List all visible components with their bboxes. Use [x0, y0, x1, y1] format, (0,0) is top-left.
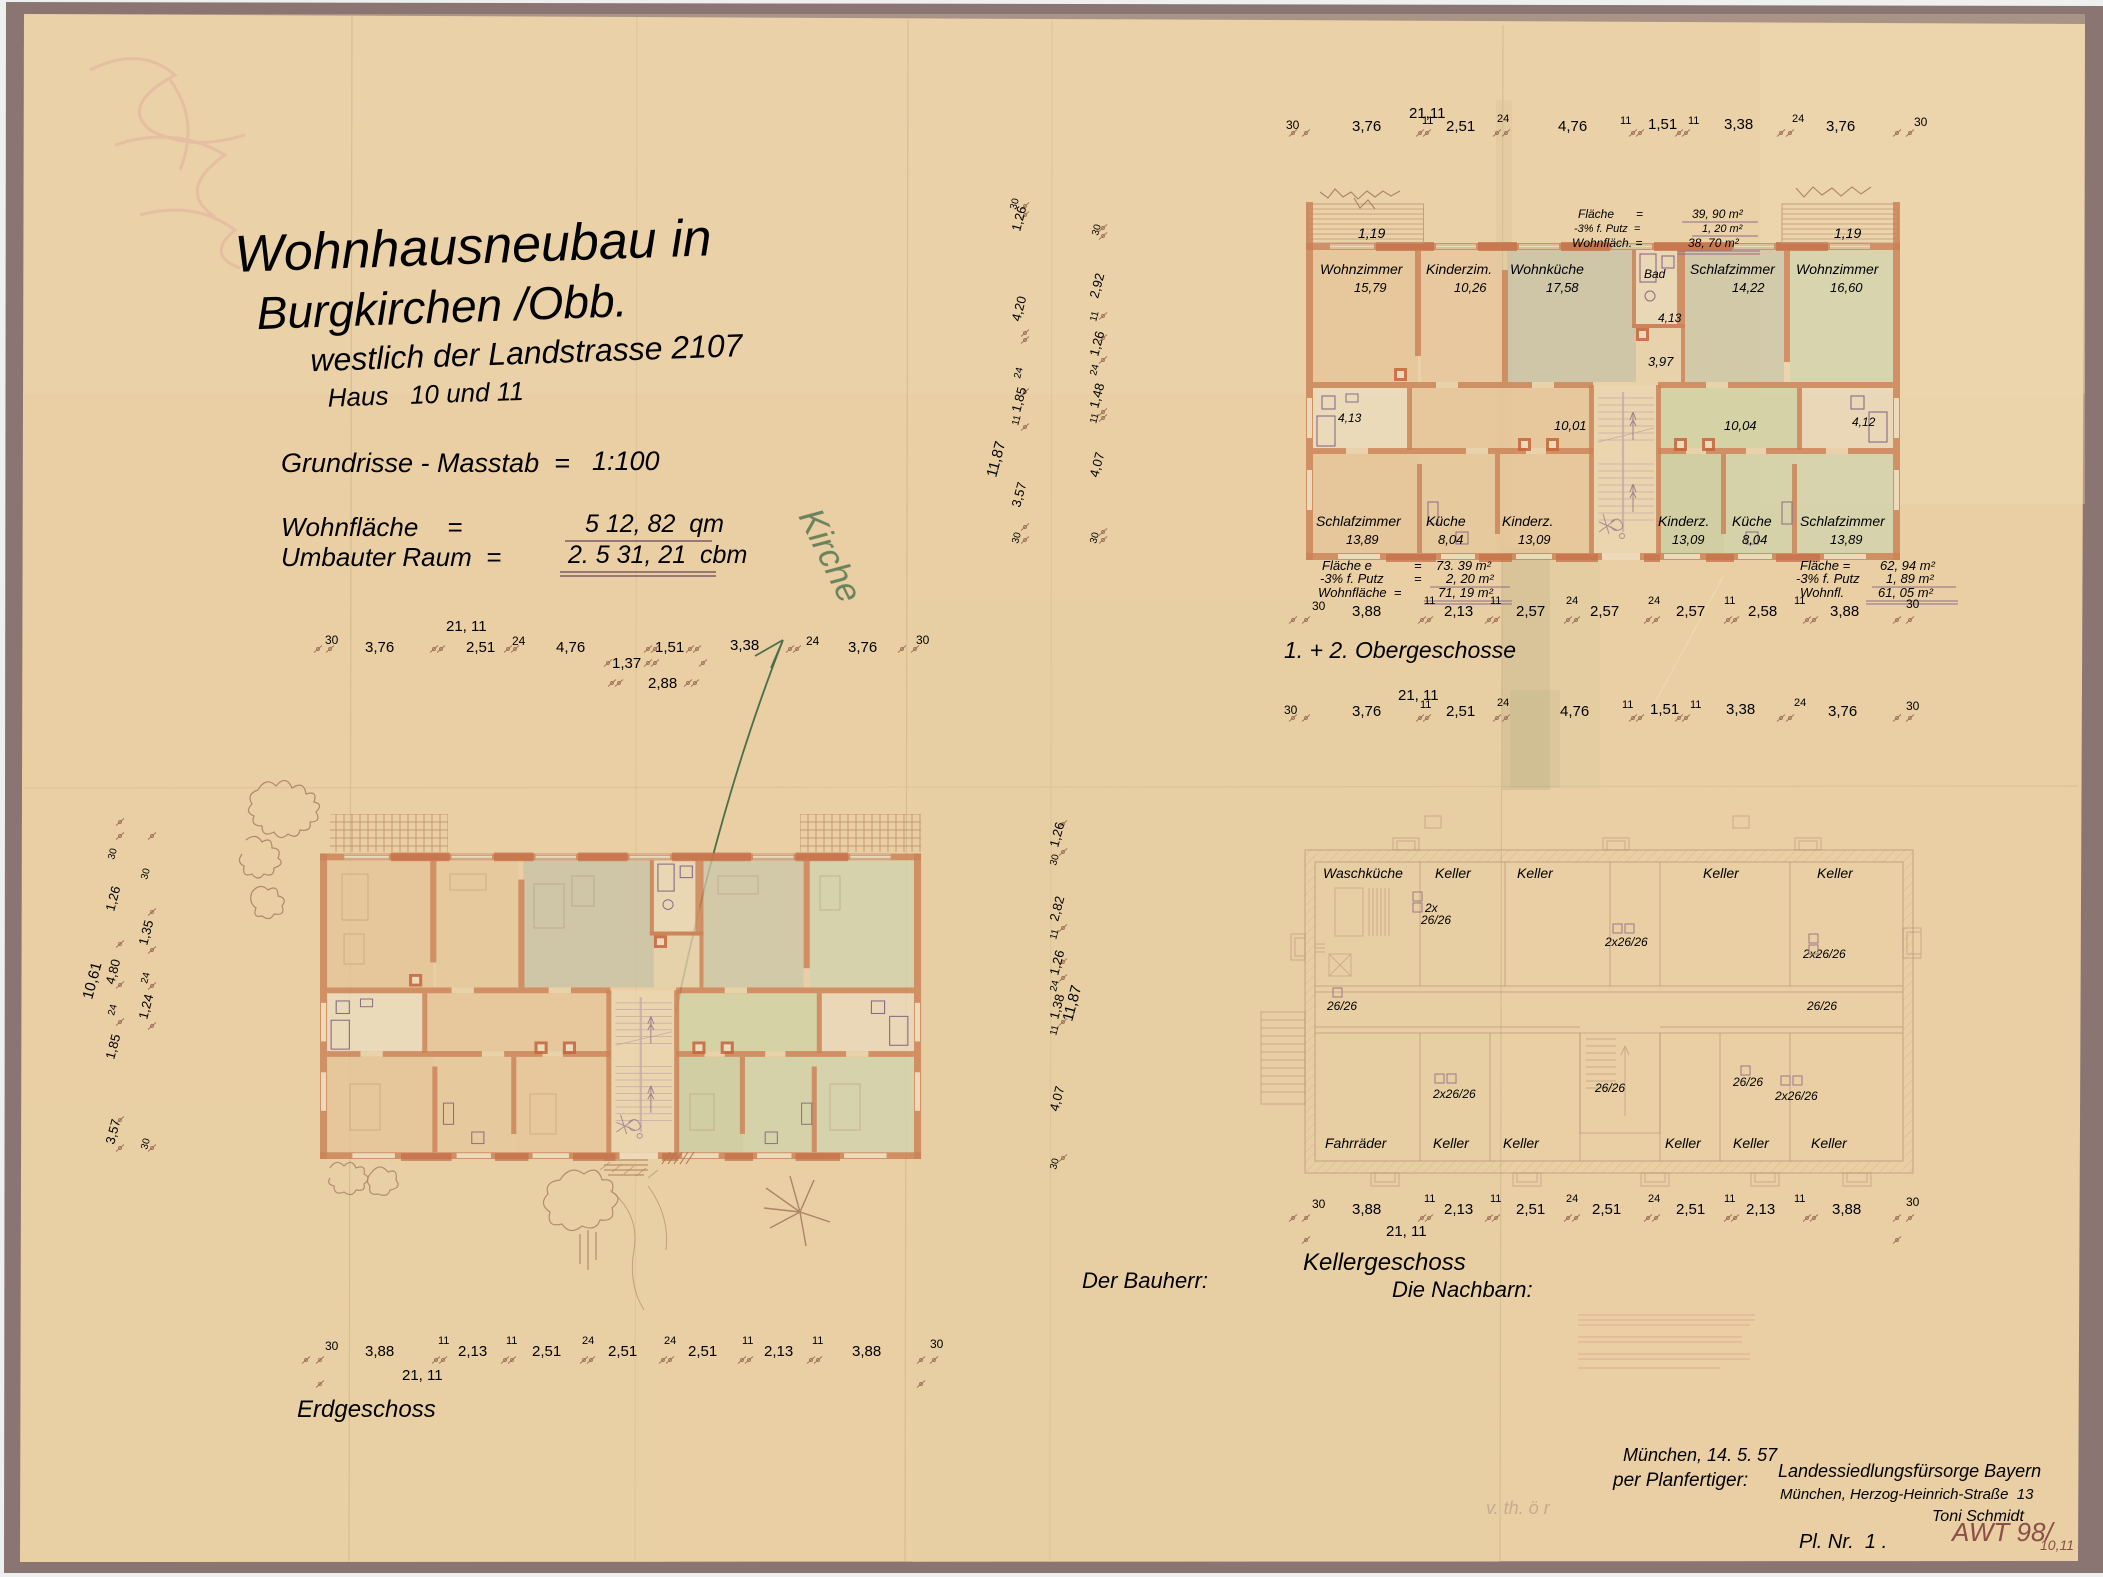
svg-text:Küche: Küche — [1732, 513, 1772, 529]
svg-text:24: 24 — [512, 634, 526, 648]
svg-text:3,76: 3,76 — [1828, 703, 1857, 720]
svg-text:16,60: 16,60 — [1830, 280, 1863, 295]
svg-text:Waschküche: Waschküche — [1323, 865, 1403, 881]
svg-text:11: 11 — [1794, 1193, 1805, 1205]
svg-text:3,97: 3,97 — [1648, 354, 1674, 369]
svg-text:2,57: 2,57 — [1590, 603, 1619, 620]
svg-text:30: 30 — [1312, 1197, 1326, 1211]
svg-text:21, 11: 21, 11 — [1398, 687, 1439, 704]
svg-text:Keller: Keller — [1517, 865, 1554, 881]
svg-text:15,79: 15,79 — [1354, 280, 1387, 295]
svg-text:11: 11 — [1622, 699, 1633, 711]
svg-text:Keller: Keller — [1733, 1135, 1770, 1151]
svg-text:Schlafzimmer: Schlafzimmer — [1690, 261, 1776, 277]
svg-text:24: 24 — [1648, 1193, 1660, 1205]
svg-text:3,88: 3,88 — [365, 1343, 394, 1360]
svg-text:Schlafzimmer: Schlafzimmer — [1800, 513, 1886, 529]
svg-text:39, 90 m²: 39, 90 m² — [1692, 207, 1744, 221]
svg-text:2,51: 2,51 — [688, 1343, 717, 1360]
svg-text:24: 24 — [582, 1335, 594, 1347]
svg-text:11: 11 — [1620, 115, 1631, 127]
svg-text:Wohnküche: Wohnküche — [1510, 261, 1584, 277]
svg-text:3,38: 3,38 — [730, 637, 759, 654]
svg-text:30: 30 — [930, 1337, 944, 1351]
svg-text:11: 11 — [1424, 595, 1435, 607]
svg-text:3,76: 3,76 — [848, 639, 877, 656]
svg-text:2,51: 2,51 — [608, 1343, 637, 1360]
svg-text:=: = — [1636, 207, 1643, 221]
svg-text:13,89: 13,89 — [1346, 532, 1379, 547]
svg-text:11: 11 — [1424, 1193, 1435, 1205]
svg-text:3,38: 3,38 — [1726, 701, 1755, 718]
svg-text:2,51: 2,51 — [1446, 118, 1475, 135]
svg-text:-3% f. Putz: -3% f. Putz — [1796, 571, 1860, 586]
svg-text:3,88: 3,88 — [1352, 1201, 1381, 1218]
svg-text:1, 20 m²: 1, 20 m² — [1702, 223, 1743, 235]
svg-text:30: 30 — [1284, 703, 1298, 717]
svg-text:11: 11 — [1690, 699, 1701, 711]
svg-text:Keller: Keller — [1703, 865, 1740, 881]
svg-text:11: 11 — [1794, 595, 1805, 607]
svg-text:13,09: 13,09 — [1518, 532, 1551, 547]
svg-text:Schlafzimmer: Schlafzimmer — [1316, 513, 1402, 529]
svg-text:30: 30 — [325, 633, 339, 647]
svg-text:11: 11 — [1724, 1193, 1735, 1205]
svg-text:1, 89 m²: 1, 89 m² — [1886, 571, 1934, 586]
svg-text:21, 11: 21, 11 — [402, 1367, 443, 1384]
svg-text:14,22: 14,22 — [1732, 280, 1765, 295]
svg-text:2,51: 2,51 — [466, 639, 495, 656]
svg-text:30: 30 — [1906, 699, 1920, 713]
svg-text:Wohnfläch. =: Wohnfläch. = — [1572, 236, 1642, 250]
svg-text:1,37: 1,37 — [612, 655, 641, 672]
svg-text:11: 11 — [1490, 1193, 1501, 1205]
svg-text:11: 11 — [1420, 699, 1431, 711]
svg-text:3,38: 3,38 — [1724, 116, 1753, 133]
svg-text:2,51: 2,51 — [1592, 1201, 1621, 1218]
svg-text:10,26: 10,26 — [1454, 280, 1487, 295]
svg-text:Kinderz.: Kinderz. — [1658, 513, 1709, 529]
svg-text:Fahrräder: Fahrräder — [1325, 1135, 1388, 1151]
svg-text:2,13: 2,13 — [764, 1343, 793, 1360]
svg-text:1. + 2. Obergeschosse: 1. + 2. Obergeschosse — [1284, 637, 1516, 663]
svg-text:10,11: 10,11 — [2040, 1537, 2074, 1553]
svg-text:24: 24 — [1497, 697, 1509, 709]
svg-text:30: 30 — [1906, 597, 1920, 611]
svg-text:2,51: 2,51 — [532, 1343, 561, 1360]
svg-text:Pl. Nr. 1 .: Pl. Nr. 1 . — [1799, 1531, 1887, 1553]
svg-text:Keller: Keller — [1503, 1135, 1540, 1151]
svg-text:Wohnfläche =: Wohnfläche = — [1318, 585, 1402, 600]
svg-text:Grundrisse - Masstab =: Grundrisse - Masstab = — [281, 448, 570, 478]
svg-text:2,13: 2,13 — [1444, 1201, 1473, 1218]
svg-text:24: 24 — [1792, 113, 1804, 125]
svg-text:10,04: 10,04 — [1724, 418, 1757, 433]
svg-text:2x26/26: 2x26/26 — [1432, 1087, 1476, 1101]
svg-text:1,51: 1,51 — [1648, 116, 1677, 133]
svg-text:Keller: Keller — [1433, 1135, 1470, 1151]
svg-text:München, 14. 5. 57: München, 14. 5. 57 — [1623, 1445, 1778, 1465]
svg-text:13,89: 13,89 — [1830, 532, 1863, 547]
svg-text:3,88: 3,88 — [852, 1343, 881, 1360]
svg-text:8,04: 8,04 — [1742, 532, 1767, 547]
svg-text:Landessiedlungsfürsorge Bayern: Landessiedlungsfürsorge Bayern — [1778, 1461, 2041, 1481]
svg-text:2,58: 2,58 — [1748, 603, 1777, 620]
svg-text:2. 5 31, 21 cbm: 2. 5 31, 21 cbm — [567, 541, 747, 569]
svg-text:per Planfertiger:: per Planfertiger: — [1612, 1470, 1748, 1491]
svg-text:2,57: 2,57 — [1676, 603, 1705, 620]
svg-text:Umbauter Raum =: Umbauter Raum = — [281, 542, 501, 572]
svg-text:30: 30 — [325, 1339, 339, 1353]
svg-text:8,04: 8,04 — [1438, 532, 1463, 547]
svg-text:2,51: 2,51 — [1516, 1201, 1545, 1218]
svg-text:Wohnfl.: Wohnfl. — [1800, 585, 1844, 600]
svg-text:1:100: 1:100 — [592, 446, 660, 476]
svg-text:24: 24 — [1497, 113, 1509, 125]
svg-text:3,76: 3,76 — [365, 639, 394, 656]
svg-text:26/26: 26/26 — [1326, 999, 1357, 1013]
svg-text:v. th. ö r: v. th. ö r — [1486, 1498, 1551, 1518]
svg-text:2,51: 2,51 — [1446, 703, 1475, 720]
svg-text:Kinderzim.: Kinderzim. — [1426, 261, 1492, 277]
svg-text:2,13: 2,13 — [1444, 603, 1473, 620]
svg-text:Kinderz.: Kinderz. — [1502, 513, 1553, 529]
svg-text:38, 70 m²: 38, 70 m² — [1688, 236, 1740, 250]
svg-text:Die Nachbarn:: Die Nachbarn: — [1392, 1277, 1533, 1302]
svg-text:11: 11 — [438, 1335, 449, 1347]
svg-text:3,76: 3,76 — [1352, 118, 1381, 135]
svg-text:2x26/26: 2x26/26 — [1774, 1089, 1818, 1103]
svg-text:Bad: Bad — [1644, 267, 1666, 281]
svg-text:Keller: Keller — [1665, 1135, 1702, 1151]
svg-text:Keller: Keller — [1435, 865, 1472, 881]
svg-text:11: 11 — [1688, 115, 1699, 127]
svg-text:26/26: 26/26 — [1420, 913, 1451, 927]
svg-text:24: 24 — [1566, 595, 1578, 607]
svg-text:2,51: 2,51 — [1676, 1201, 1705, 1218]
svg-text:11: 11 — [1724, 595, 1735, 607]
svg-text:30: 30 — [916, 633, 930, 647]
svg-text:3,88: 3,88 — [1352, 603, 1381, 620]
svg-text:11: 11 — [1422, 115, 1433, 127]
svg-text:24: 24 — [664, 1335, 676, 1347]
svg-text:4,12: 4,12 — [1852, 415, 1876, 429]
svg-text:26/26: 26/26 — [1594, 1081, 1625, 1095]
svg-text:2,57: 2,57 — [1516, 603, 1545, 620]
svg-text:3,88: 3,88 — [1832, 1201, 1861, 1218]
svg-text:2, 20 m²: 2, 20 m² — [1445, 571, 1494, 586]
svg-text:4,76: 4,76 — [556, 639, 585, 656]
svg-text:26/26: 26/26 — [1732, 1075, 1763, 1089]
svg-text:Keller: Keller — [1811, 1135, 1848, 1151]
svg-text:30: 30 — [1906, 1195, 1920, 1209]
svg-text:Keller: Keller — [1817, 865, 1854, 881]
svg-text:Erdgeschoss: Erdgeschoss — [297, 1396, 436, 1423]
svg-text:24: 24 — [806, 634, 820, 648]
svg-text:11: 11 — [1490, 595, 1501, 607]
svg-text:11: 11 — [742, 1335, 753, 1347]
svg-text:2,13: 2,13 — [458, 1343, 487, 1360]
svg-text:17,58: 17,58 — [1546, 280, 1579, 295]
svg-text:11: 11 — [812, 1335, 823, 1347]
svg-text:5 12, 82 qm: 5 12, 82 qm — [585, 510, 724, 538]
svg-text:3,76: 3,76 — [1826, 118, 1855, 135]
svg-text:Wohnzimmer: Wohnzimmer — [1796, 261, 1880, 277]
svg-text:24: 24 — [1648, 595, 1660, 607]
svg-text:4,76: 4,76 — [1558, 118, 1587, 135]
svg-text:24: 24 — [1794, 697, 1806, 709]
svg-text:1,51: 1,51 — [1650, 701, 1679, 718]
svg-text:Der Bauherr:: Der Bauherr: — [1082, 1268, 1208, 1293]
svg-text:=: = — [1414, 571, 1422, 586]
svg-text:1,19: 1,19 — [1358, 225, 1385, 241]
svg-text:3,88: 3,88 — [1830, 603, 1859, 620]
svg-text:2x26/26: 2x26/26 — [1604, 935, 1648, 949]
svg-text:2,13: 2,13 — [1746, 1201, 1775, 1218]
svg-text:26/26: 26/26 — [1806, 999, 1837, 1013]
svg-text:4,13: 4,13 — [1338, 411, 1362, 425]
svg-text:24: 24 — [1566, 1193, 1578, 1205]
svg-text:-3% f. Putz =: -3% f. Putz = — [1574, 223, 1641, 235]
svg-text:4,13: 4,13 — [1658, 311, 1682, 325]
svg-text:1,19: 1,19 — [1834, 225, 1861, 241]
svg-text:30: 30 — [1312, 599, 1326, 613]
svg-text:10,01: 10,01 — [1554, 418, 1587, 433]
svg-text:30: 30 — [1286, 118, 1300, 132]
svg-text:2,88: 2,88 — [648, 675, 677, 692]
svg-text:13,09: 13,09 — [1672, 532, 1705, 547]
svg-text:11: 11 — [506, 1335, 517, 1347]
svg-text:Kellergeschoss: Kellergeschoss — [1303, 1249, 1466, 1276]
svg-text:30: 30 — [1914, 115, 1928, 129]
svg-text:Wohnfläche =: Wohnfläche = — [281, 512, 462, 542]
svg-text:-3% f. Putz: -3% f. Putz — [1320, 571, 1384, 586]
svg-text:Küche: Küche — [1426, 513, 1466, 529]
svg-text:21, 11: 21, 11 — [1386, 1223, 1427, 1240]
svg-text:3,76: 3,76 — [1352, 703, 1381, 720]
svg-text:1,51: 1,51 — [655, 639, 684, 656]
svg-text:Fläche: Fläche — [1578, 207, 1614, 221]
svg-text:Wohnzimmer: Wohnzimmer — [1320, 261, 1404, 277]
svg-text:4,76: 4,76 — [1560, 703, 1589, 720]
svg-text:21, 11: 21, 11 — [446, 618, 487, 635]
svg-text:München, Herzog-Heinrich-Straß: München, Herzog-Heinrich-Straße 13 — [1780, 1486, 2034, 1503]
